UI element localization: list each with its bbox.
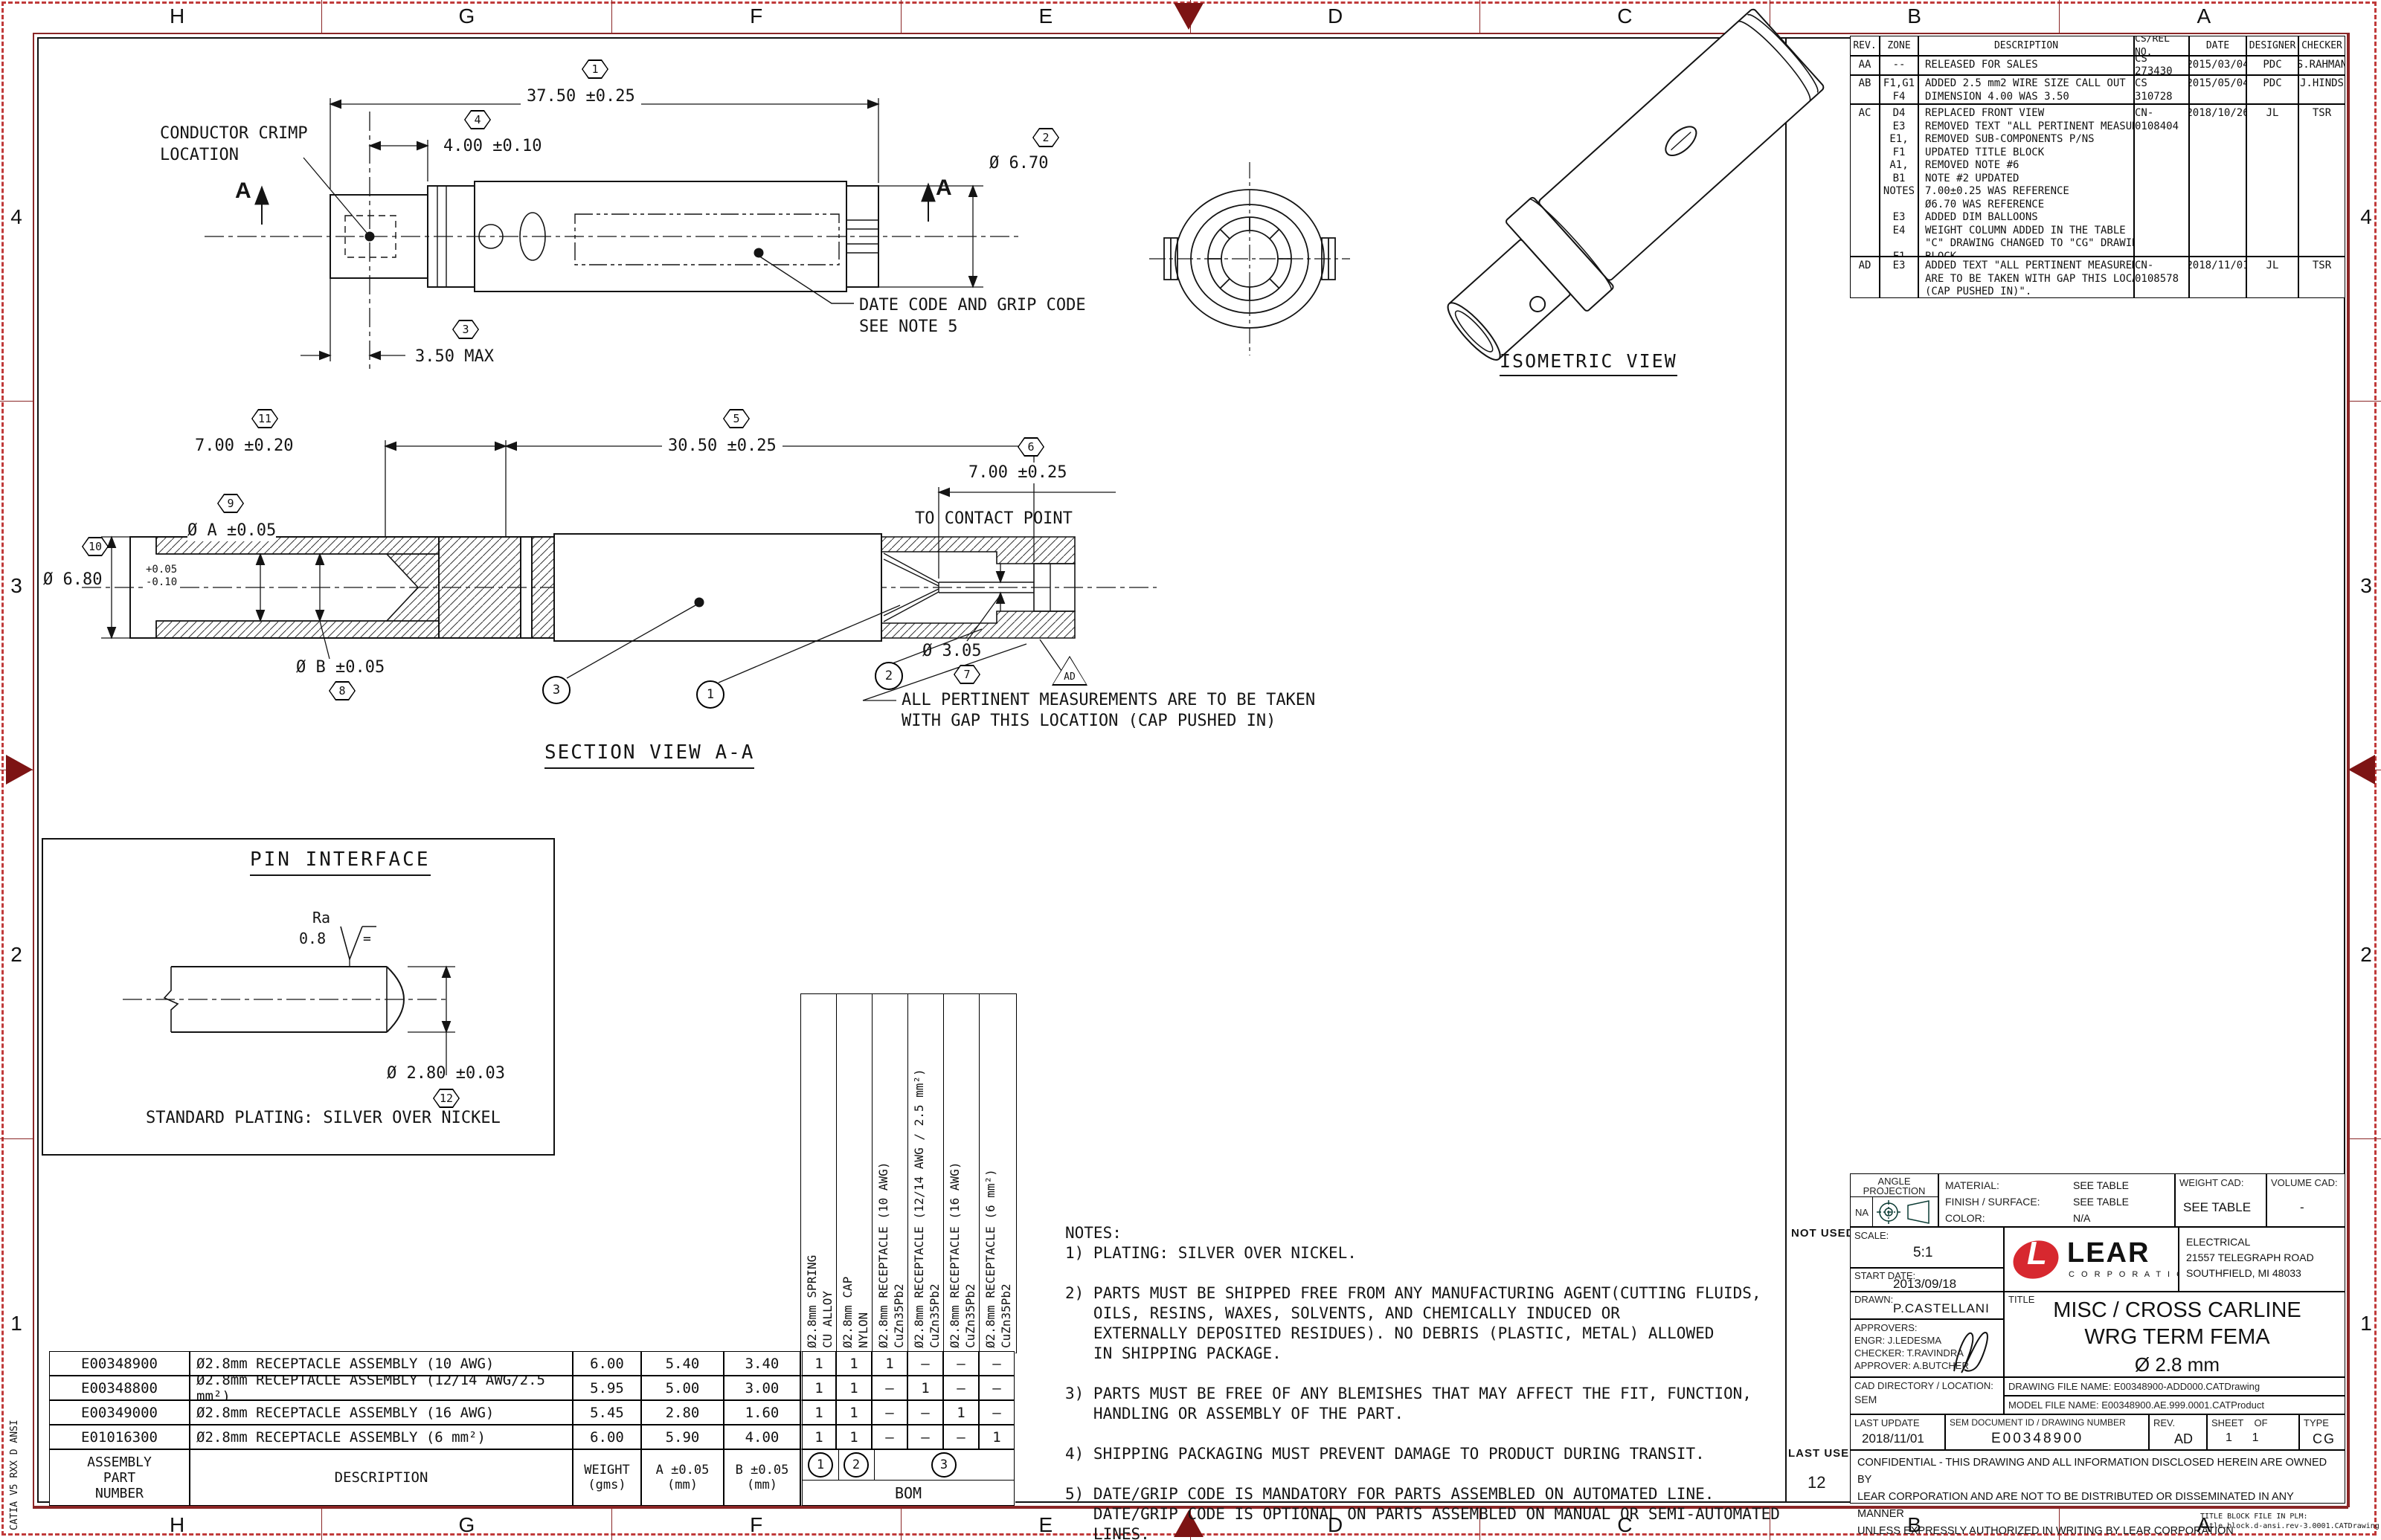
bom-dim-b: 4.00	[724, 1425, 800, 1449]
bom-group-3: 3	[874, 1450, 1014, 1481]
angle-projection-label: ANGLE PROJECTION	[1850, 1176, 1938, 1196]
bom-qty: 1	[943, 1400, 979, 1425]
bom-component-header-2: Ø2.8mm CAP NYLON	[836, 993, 874, 1353]
bom-qty: 1	[800, 1425, 836, 1449]
surface-finish-ra-label: Ra	[312, 909, 330, 927]
rev-checker: J.HINDS	[2298, 75, 2345, 104]
scale-value: 5:1	[1913, 1245, 1932, 1261]
bom-component-header-1: Ø2.8mm SPRING CU ALLOY	[800, 993, 838, 1353]
circled-1-icon: 1	[808, 1452, 833, 1478]
drawing-sheet: H G F E D C B A H G F E D C B A 4 3 2 1 …	[0, 0, 2381, 1540]
bom-dim-b: 1.60	[724, 1400, 800, 1425]
dim-crimp-offset: 4.00 ±0.10	[443, 136, 542, 157]
bom-qty: –	[979, 1351, 1015, 1376]
datecode-note: DATE CODE AND GRIP CODE SEE NOTE 5	[859, 294, 1086, 338]
rev-designer: PDC	[2246, 75, 2298, 104]
bom-qty: 1	[836, 1376, 872, 1400]
bom-description: Ø2.8mm RECEPTACLE ASSEMBLY (16 AWG)	[190, 1400, 573, 1425]
bom-component-header-text: Ø2.8mm SPRING CU ALLOY	[804, 999, 835, 1348]
sheet-value: 1 1	[2226, 1431, 2258, 1445]
bom-component-header-3: Ø2.8mm RECEPTACLE (10 AWG) CuZn35Pb2	[872, 993, 910, 1353]
bom-qty: 1	[800, 1400, 836, 1425]
rev-designer: JL	[2246, 104, 2298, 257]
angle-divider-h	[1851, 1196, 1938, 1197]
rev-zone: --	[1880, 56, 1918, 75]
bom-qty: –	[872, 1376, 907, 1400]
bom-part-number: E00348900	[49, 1351, 190, 1376]
drawing-title-line2: WRG TERM FEMA	[2028, 1325, 2326, 1350]
bom-qty: –	[872, 1400, 907, 1425]
last-used-label: LAST USED	[1788, 1447, 1858, 1461]
section-letter-a-left: A	[235, 177, 251, 205]
rev-date: 2015/03/04	[2189, 56, 2246, 75]
weight-cad-label: WEIGHT CAD:	[2179, 1177, 2243, 1188]
angle-divider-v	[1872, 1196, 1873, 1226]
rev-cs: CN-0108404	[2134, 104, 2189, 257]
bom-part-number: E01016300	[49, 1425, 190, 1449]
color-label: COLOR:	[1945, 1212, 1985, 1224]
rev-label: REV.	[2153, 1417, 2175, 1428]
bom-dim-b: 3.00	[724, 1376, 800, 1400]
approvers-label: APPROVERS:	[1854, 1322, 1918, 1333]
bom-dim-a: 5.40	[641, 1351, 724, 1376]
company-address: ELECTRICAL 21557 TELEGRAPH ROAD SOUTHFIE…	[2186, 1234, 2314, 1281]
standard-plating-note: STANDARD PLATING: SILVER OVER NICKEL	[146, 1108, 501, 1129]
bom-qty: –	[943, 1376, 979, 1400]
dim-dia-280: Ø 2.80 ±0.03	[387, 1063, 505, 1084]
bom-qty: –	[872, 1425, 907, 1449]
bom-component-header-6: Ø2.8mm RECEPTACLE (6 mm²) CuZn35Pb2	[979, 993, 1017, 1353]
doc-id-label: SEM DOCUMENT ID / DRAWING NUMBER	[1950, 1417, 2126, 1428]
bom-qty: 1	[800, 1376, 836, 1400]
dim-700-020: 7.00 ±0.20	[195, 436, 293, 457]
approver-engr: ENGR: J.LEDESMA	[1854, 1335, 1941, 1346]
bom-qty: –	[979, 1400, 1015, 1425]
bom-header-part-number: ASSEMBLY PART NUMBER	[49, 1449, 190, 1506]
bom-component-header-text: Ø2.8mm CAP NYLON	[840, 999, 871, 1348]
pin-interface-title: PIN INTERFACE	[250, 848, 431, 876]
section-letter-a-right: A	[936, 174, 952, 202]
bom-group-1: 1	[803, 1450, 839, 1481]
item-balloon-1: 1	[696, 680, 724, 709]
isometric-view-linework	[1425, 2, 1830, 384]
rev-zone: E3	[1880, 257, 1918, 298]
circular-view-linework	[1149, 162, 1350, 355]
dim-dia-680-tol: +0.05 -0.10	[146, 564, 177, 589]
circled-3-icon: 3	[931, 1452, 957, 1478]
bom-dim-a: 5.00	[641, 1376, 724, 1400]
bom-component-header-text: Ø2.8mm RECEPTACLE (6 mm²) CuZn35Pb2	[983, 999, 1014, 1348]
approver-signature	[1947, 1327, 1999, 1376]
title-block: ANGLE PROJECTION NA MATERIAL: SEE TABLE …	[1850, 1173, 2345, 1504]
bom-qty: 1	[836, 1400, 872, 1425]
bom-component-header-4: Ø2.8mm RECEPTACLE (12/14 AWG / 2.5 mm²) …	[907, 993, 945, 1353]
bom-part-number: E00349000	[49, 1400, 190, 1425]
dim-dia-b: Ø B ±0.05	[296, 657, 385, 678]
rev-id: AB	[1850, 75, 1880, 104]
bom-header-description: DESCRIPTION	[190, 1449, 573, 1506]
doc-id-value: E00348900	[1991, 1431, 2083, 1447]
dim-dia-a: Ø A ±0.05	[187, 521, 276, 541]
start-date-value: 2013/09/18	[1893, 1277, 1956, 1292]
surface-finish-ra-value: 0.8	[299, 930, 326, 948]
last-used-value: 12	[1808, 1472, 1825, 1493]
dim-3050: 30.50 ±0.25	[662, 436, 783, 457]
angle-na-value: NA	[1855, 1207, 1869, 1218]
bom-dim-a: 5.90	[641, 1425, 724, 1449]
bom-qty: 1	[836, 1425, 872, 1449]
rev-value: AD	[2174, 1431, 2193, 1447]
rev-date: 2018/10/26	[2189, 104, 2246, 257]
title-block-file-note: TITLE BLOCK FILE IN PLM: title.block.d-a…	[2200, 1512, 2380, 1531]
rev-header: CHECKER	[2298, 36, 2345, 56]
lear-logo-l: L	[2027, 1235, 2047, 1272]
rev-header: CS/REL NO.	[2134, 36, 2189, 56]
bom-group-2: 2	[838, 1450, 875, 1481]
drawn-value: P.CASTELLANI	[1893, 1301, 1990, 1316]
volume-cad-label: VOLUME CAD:	[2271, 1177, 2338, 1188]
rev-checker: TSR	[2298, 257, 2345, 298]
bom-qty: 1	[979, 1425, 1015, 1449]
rev-checker: S.RAHMAN	[2298, 56, 2345, 75]
rev-header: DESIGNER	[2246, 36, 2298, 56]
rev-desc: ADDED TEXT "ALL PERTINENT MEASUREMENTS A…	[1918, 257, 2134, 298]
rev-id: AA	[1850, 56, 1880, 75]
rev-cs: CS 273430	[2134, 56, 2189, 75]
rev-cs: CS 310728	[2134, 75, 2189, 104]
bom-weight: 5.45	[573, 1400, 641, 1425]
dim-350-max: 3.50 MAX	[415, 347, 494, 367]
dim-dia-670: Ø 6.70	[989, 153, 1048, 174]
bom-table: E00348900 Ø2.8mm RECEPTACLE ASSEMBLY (10…	[49, 1351, 1015, 1506]
bom-part-number: E00348800	[49, 1376, 190, 1400]
weight-cad-value: SEE TABLE	[2183, 1200, 2251, 1215]
cad-directory-value: SEM	[1854, 1394, 1877, 1405]
type-value: CG	[2313, 1431, 2336, 1447]
catia-side-text: CATIA V5 RXX D ANSI	[9, 1359, 21, 1530]
to-contact-point-label: TO CONTACT POINT	[915, 509, 1073, 529]
finish-value: SEE TABLE	[2073, 1196, 2129, 1208]
not-used-label: NOT USED	[1791, 1227, 1855, 1241]
bom-qty: –	[907, 1400, 943, 1425]
material-label: MATERIAL:	[1945, 1179, 1999, 1191]
bom-weight: 6.00	[573, 1425, 641, 1449]
bom-qty: 1	[872, 1351, 907, 1376]
rev-header: DESCRIPTION	[1918, 36, 2134, 56]
rev-date: 2018/11/01	[2189, 257, 2246, 298]
dim-dia-305: Ø 3.05	[922, 641, 981, 662]
dim-overall-length: 37.50 ±0.25	[521, 86, 641, 107]
revision-table: REV. ZONE DESCRIPTION CS/REL NO. DATE DE…	[1850, 36, 2345, 298]
rev-designer: JL	[2246, 257, 2298, 298]
cad-directory-label: CAD DIRECTORY / LOCATION:	[1854, 1380, 1993, 1391]
bom-description: Ø2.8mm RECEPTACLE ASSEMBLY (12/14 AWG/2.…	[190, 1376, 573, 1400]
bom-qty: –	[979, 1376, 1015, 1400]
rev-checker: TSR	[2298, 104, 2345, 257]
type-label: TYPE	[2304, 1417, 2329, 1428]
volume-cad-value: -	[2300, 1200, 2304, 1215]
rev-header: ZONE	[1880, 36, 1918, 56]
color-value: N/A	[2073, 1212, 2090, 1224]
bom-dim-a: 2.80	[641, 1400, 724, 1425]
scale-label: SCALE:	[1854, 1230, 1889, 1241]
lear-wordmark: LEAR	[2067, 1237, 2150, 1269]
bom-qty: 1	[800, 1351, 836, 1376]
bom-label: BOM	[803, 1481, 1014, 1505]
bom-footer-groups: 1 2 3 BOM	[800, 1449, 1015, 1506]
circled-2-icon: 2	[844, 1452, 869, 1478]
bom-qty: –	[943, 1425, 979, 1449]
bom-dim-b: 3.40	[724, 1351, 800, 1376]
model-file-name: MODEL FILE NAME: E00348900.AE.999.0001.C…	[2008, 1399, 2264, 1411]
material-value: SEE TABLE	[2073, 1179, 2129, 1191]
conductor-crimp-label: CONDUCTOR CRIMP LOCATION	[160, 123, 308, 166]
bom-weight: 6.00	[573, 1351, 641, 1376]
drawing-title-line3: Ø 2.8 mm	[2028, 1353, 2326, 1376]
rev-date: 2015/05/04	[2189, 75, 2246, 104]
dim-700-025: 7.00 ±0.25	[964, 463, 1071, 483]
bom-component-header-text: Ø2.8mm RECEPTACLE (16 AWG) CuZn35Pb2	[947, 999, 978, 1348]
surface-finish-eq: =	[363, 931, 371, 948]
bom-description: Ø2.8mm RECEPTACLE ASSEMBLY (10 AWG)	[190, 1351, 573, 1376]
drawing-file-name: DRAWING FILE NAME: E00348900-ADD000.CATD…	[2008, 1381, 2260, 1392]
drawn-label: DRAWN:	[1854, 1294, 1893, 1305]
bom-header-dim-a: A ±0.05 (mm)	[641, 1449, 724, 1506]
third-angle-projection-icon	[1875, 1198, 1938, 1226]
last-update-label: LAST UPDATE	[1854, 1417, 1920, 1428]
bom-description: Ø2.8mm RECEPTACLE ASSEMBLY (6 mm²)	[190, 1425, 573, 1449]
bom-component-header-5: Ø2.8mm RECEPTACLE (16 AWG) CuZn35Pb2	[943, 993, 981, 1353]
bom-weight: 5.95	[573, 1376, 641, 1400]
last-update-value: 2018/11/01	[1862, 1431, 1924, 1446]
bom-qty: 1	[907, 1376, 943, 1400]
bom-component-header-text: Ø2.8mm RECEPTACLE (10 AWG) CuZn35Pb2	[875, 999, 907, 1348]
rev-desc: ADDED 2.5 mm2 WIRE SIZE CALL OUT DIMENSI…	[1918, 75, 2134, 104]
rev-header: DATE	[2189, 36, 2246, 56]
bom-qty: –	[943, 1351, 979, 1376]
rev-desc: RELEASED FOR SALES	[1918, 56, 2134, 75]
gap-measurement-note: ALL PERTINENT MEASUREMENTS ARE TO BE TAK…	[902, 690, 1315, 732]
bom-header-weight: WEIGHT (gms)	[573, 1449, 641, 1506]
bom-qty: –	[907, 1351, 943, 1376]
rev-designer: PDC	[2246, 56, 2298, 75]
rev-desc: REPLACED FRONT VIEW REMOVED TEXT "ALL PE…	[1918, 104, 2134, 257]
item-balloon-2: 2	[875, 662, 903, 690]
notes-block: NOTES: 1) PLATING: SILVER OVER NICKEL. 2…	[1065, 1223, 1780, 1540]
isometric-view-label: ISOMETRIC VIEW	[1500, 349, 1677, 376]
rev-cs: CN-0108578	[2134, 257, 2189, 298]
bom-qty: –	[907, 1425, 943, 1449]
finish-label: FINISH / SURFACE:	[1945, 1196, 2040, 1208]
dim-dia-680: Ø 6.80	[43, 570, 102, 590]
bom-component-header-text: Ø2.8mm RECEPTACLE (12/14 AWG / 2.5 mm²) …	[911, 999, 942, 1348]
rev-zone: D4 E3 E1, F1 A1, B1 NOTES E3 E4 F1	[1880, 104, 1918, 257]
section-view-label: SECTION VIEW A-A	[544, 741, 754, 769]
sheet-label: SHEET OF	[2211, 1417, 2268, 1428]
item-balloon-3: 3	[542, 676, 571, 704]
rev-id: AD	[1850, 257, 1880, 298]
rev-header: REV.	[1850, 36, 1880, 56]
bom-header-dim-b: B ±0.05 (mm)	[724, 1449, 800, 1506]
rev-zone: F1,G1 F4	[1880, 75, 1918, 104]
rev-id: AC	[1850, 104, 1880, 257]
bom-qty: 1	[836, 1351, 872, 1376]
drawing-title-line1: MISC / CROSS CARLINE	[2028, 1298, 2326, 1323]
